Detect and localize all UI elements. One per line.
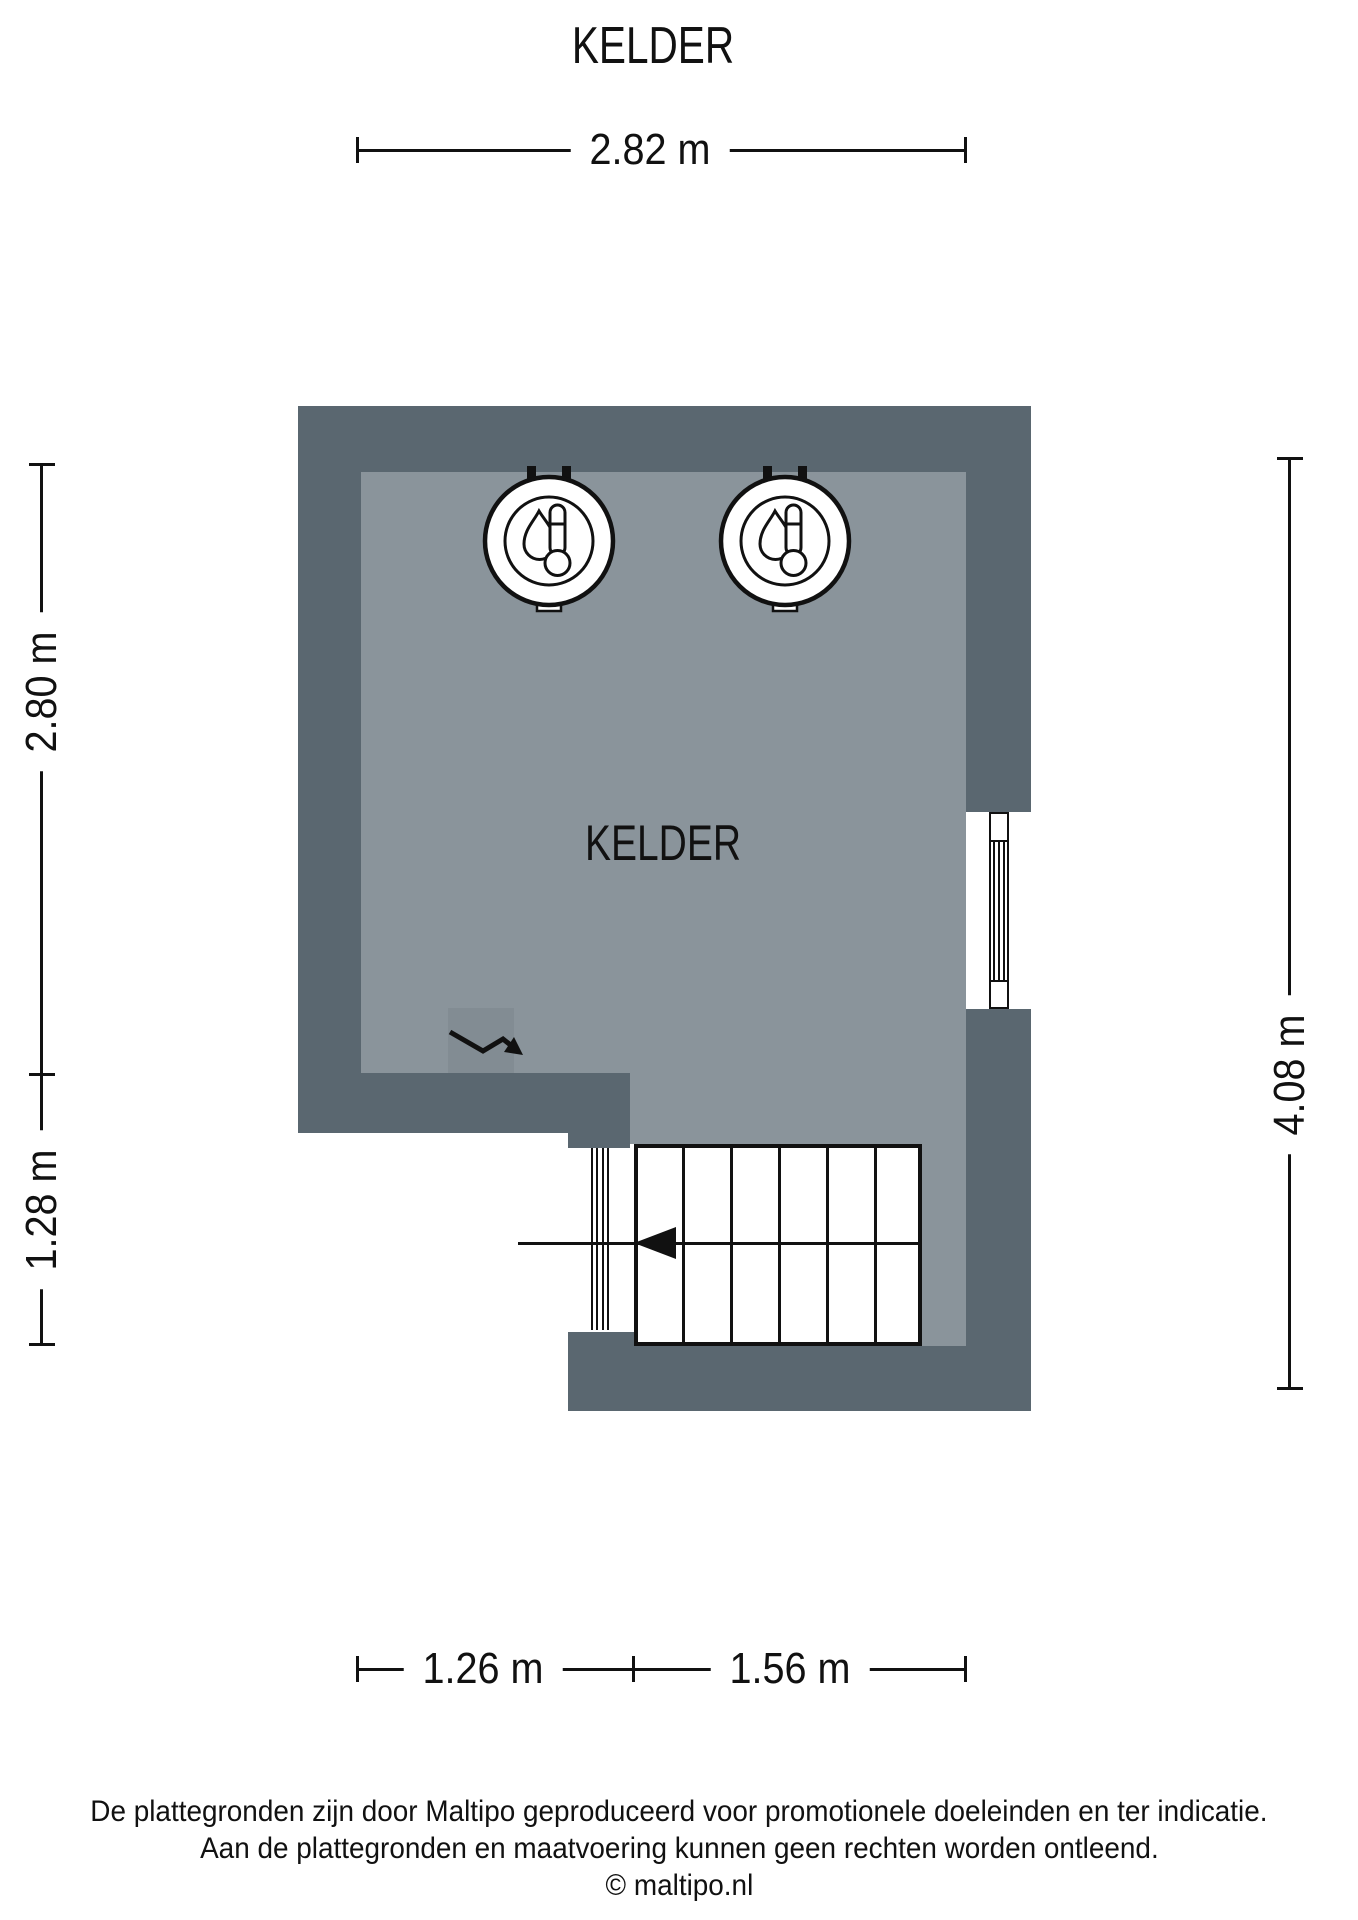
wall-right-upper [966,472,1031,812]
stairs-direction-arrow [634,1227,676,1259]
footer-disclaimer-line2: Aan de plattegronden en maatvoering kunn… [0,1834,1358,1864]
dim-left-tick-top [29,463,55,466]
door-line [602,1148,604,1330]
window-glass-line [993,842,995,980]
dim-right-line [1288,458,1291,1390]
dim-bottom-tick-right [964,1656,967,1682]
door-line [607,1148,609,1330]
wall-bottom [634,1346,1031,1411]
page-title: KELDER [549,20,757,72]
floorplan-page: KELDER 2.82 m 2.80 m 1.28 m 4.08 m 1.26 … [0,0,1358,1920]
stair-tread-line [826,1144,829,1346]
floor-main [361,472,966,1073]
window-glass-line [998,842,1000,980]
dim-bottom-tick-left [356,1656,359,1682]
dim-bottom-tick-mid [632,1656,635,1682]
dim-left-tick-bottom [29,1343,55,1346]
dim-bottom-right-label: 1.56 m [711,1645,870,1693]
dim-left-upper-label: 2.80 m [18,613,66,772]
stair-tread-line [682,1144,685,1346]
electricity-arrow-icon [443,1018,535,1064]
dim-top-tick-right [964,137,967,163]
room-label: KELDER [563,818,763,868]
wall-left [298,472,361,1133]
window-mullion-bottom [990,980,1008,982]
wall-below-door [568,1332,634,1411]
floor-right-of-stairs [922,1144,966,1346]
boiler-thermometer-icon [715,458,855,618]
floor-above-stairs [630,1073,966,1144]
wall-top [298,406,1031,472]
dim-left-tick-mid [29,1073,55,1076]
stair-tread-line [874,1144,877,1346]
boiler-thermometer-icon [479,458,619,618]
dim-top-tick-left [356,137,359,163]
footer-copyright: © maltipo.nl [0,1871,1358,1901]
stair-tread-line [778,1144,781,1346]
dim-bottom-left-label: 1.26 m [404,1645,563,1693]
stairs-walkline [518,1242,922,1245]
stair-tread-line [730,1144,733,1346]
dim-right-tick-top [1277,457,1303,460]
dim-top-label: 2.82 m [571,126,730,174]
dim-right-tick-bottom [1277,1387,1303,1390]
wall-door-jamb [568,1133,630,1148]
window-glass-line [1003,842,1005,980]
wall-bottom-left [361,1073,630,1133]
dim-right-label: 4.08 m [1266,996,1314,1155]
door-line [591,1148,593,1330]
footer-disclaimer-line1: De plattegronden zijn door Maltipo gepro… [0,1797,1358,1827]
door-line [596,1148,598,1330]
dim-left-lower-label: 1.28 m [18,1131,66,1290]
